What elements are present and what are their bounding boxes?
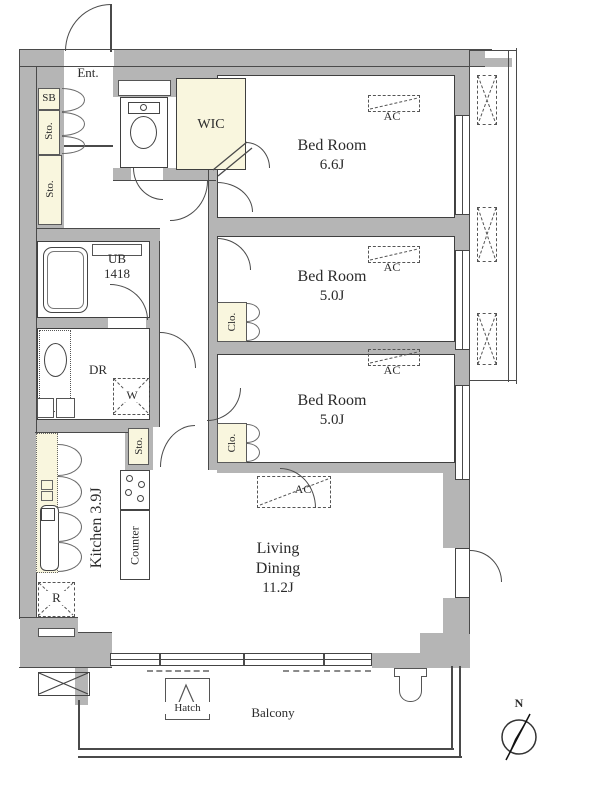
cabinet-door-arc [58,512,82,542]
wall-top [114,50,485,67]
edge-left [19,49,20,619]
wall-vent-slot [38,628,75,637]
bedroom3-name: Bed Room [272,392,392,410]
bedroom2-size: 5.0J [272,288,392,305]
cabinet-door-arc [58,444,82,476]
kitchen-faucet [41,508,55,521]
wall-ub-dr-a [37,318,108,328]
living-name2: Dining [218,560,338,578]
bedroom1-ac-label: AC [377,110,407,123]
living-ac-label: AC [288,483,318,496]
wall-bottom-left-a [20,618,78,668]
compass-icon [492,696,548,766]
washer-label: W [118,389,146,402]
stove-burner [138,481,145,488]
meter-box-icon [477,75,497,125]
wic-label: WIC [181,117,241,132]
balcony-right-line2 [459,666,461,756]
shoe-box-label: SB [37,92,61,104]
stove-burner [126,475,133,482]
equipment-pad-icon [38,672,90,696]
meter-box-icon [477,207,497,262]
entry-storage2-label: Sto. [44,171,56,207]
hall-ld-door-arc [160,425,195,467]
dressing-room-label: DR [78,363,118,377]
balcony-sill-dash [283,670,371,672]
faucet-bowl [399,676,422,702]
wall-bottom-right-a [372,653,420,668]
window-bedroom1 [455,115,470,215]
hatch-label: Hatch [164,702,211,714]
edge-ub-top [37,228,160,229]
toilet-button [140,104,147,111]
kitchen-label: Kitchen 3.9J [88,473,106,583]
bedroom1-name: Bed Room [272,137,392,155]
shoe-box-door-arc [62,112,85,136]
balcony-bottom-line1 [78,748,454,750]
hall-storage-label: Sto. [133,428,145,464]
entrance-label: Ent. [64,66,112,80]
hall-door-arc [170,181,208,221]
kitchen-fixture [41,491,53,501]
kitchen-fixture [41,480,53,490]
strip-right-line2 [516,48,517,384]
wall-br3-ld [217,463,455,473]
wall-ld-right-a [443,473,455,548]
strip-bottom-line [470,380,516,381]
window-bedroom3 [455,385,470,480]
door-living-balcony [455,548,470,598]
balcony-left-line [78,700,80,749]
balcony-label: Balcony [228,706,318,720]
balcony-right-line1 [451,666,453,748]
wall-left [20,50,37,618]
vanity-cabinet [56,398,75,418]
vanity-sink [44,343,67,377]
bedroom3-size: 5.0J [272,412,392,429]
bathtub-inner [47,251,84,309]
entrance-door-arc [65,4,111,51]
toilet-shelf [118,80,171,96]
edge-block-bottom [19,667,112,668]
fridge-label: R [44,591,69,605]
wall-br1-br2 [217,218,455,236]
stove-burner [125,489,132,496]
wall-bottom-left-b [78,633,112,668]
bedroom2-closet-label: Clo. [226,304,238,340]
entry-storage1-label: Sto. [43,113,55,149]
bedroom1-size: 6.6J [272,157,392,174]
bath-size-label: 1418 [92,267,142,281]
bedroom3-closet-label: Clo. [226,425,238,461]
dressing-door-arc [160,332,196,368]
balcony-sill-dash [147,670,209,672]
strip-top-line [470,50,516,51]
bedroom3-ac-label: AC [377,364,407,377]
counter-label: Counter [128,516,141,576]
storage-door-arc [62,136,85,154]
bedroom2-name: Bed Room [272,268,392,286]
meter-box-icon [477,313,497,365]
cabinet-door-arc [58,476,82,508]
edge-block-b [78,632,112,633]
wall-br1-backing [256,67,455,75]
living-size: 11.2J [218,580,338,597]
shoe-box-door-arc [62,88,85,112]
strip-right-line1 [508,50,509,382]
toilet-door-arc [133,168,163,200]
edge-block-a [20,617,78,618]
floor-plan: AC Bed Room 6.6J AC Bed Room 5.0J Clo. A… [0,0,600,800]
window-living-south [110,653,372,666]
wall-ub-top [37,228,160,241]
window-bedroom2 [455,250,470,350]
living-name1: Living [218,540,338,558]
cabinet-door-arc [58,542,82,572]
entrance-door-leaf [110,4,112,52]
toilet-bowl [130,116,157,149]
vanity-cabinet [37,398,54,418]
door-arc-living-balcony [470,550,502,582]
balcony-bottom-line2 [78,756,462,758]
stove-burner [137,495,144,502]
wall-bottom-right-b [420,633,470,668]
bath-label: UB [92,252,142,266]
